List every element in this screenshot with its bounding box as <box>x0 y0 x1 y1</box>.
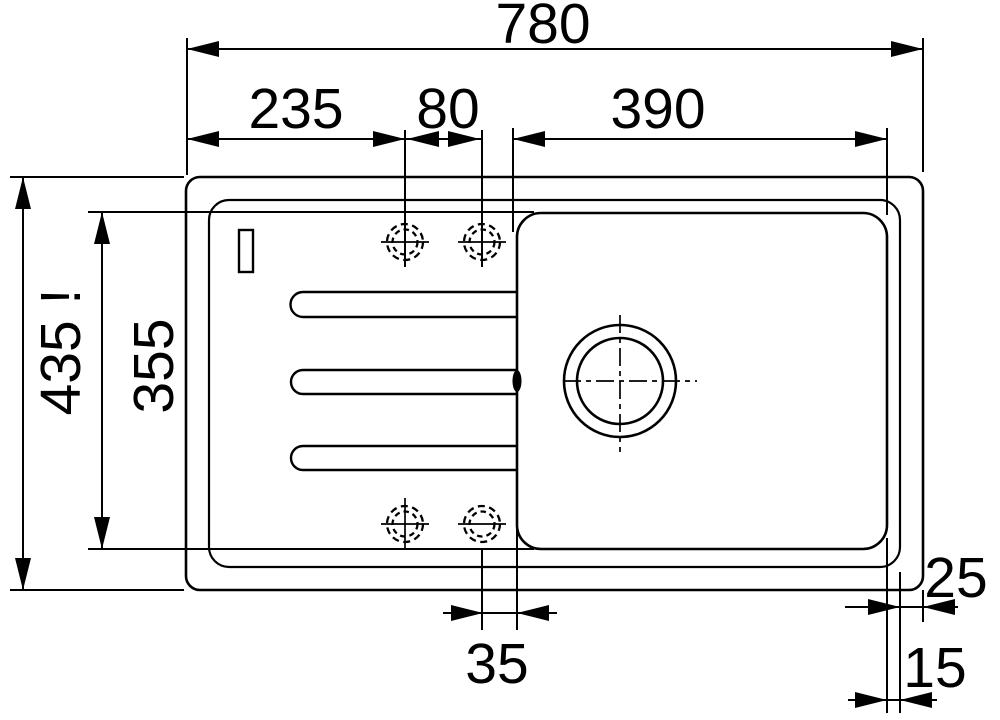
arrowhead <box>15 558 31 590</box>
dim-390-label: 390 <box>610 77 705 141</box>
dim-15-label: 15 <box>903 636 966 700</box>
tap-holes <box>381 224 506 549</box>
arrowhead <box>855 692 887 708</box>
sink-outer-edge <box>186 177 923 590</box>
arrowhead <box>187 41 219 57</box>
dim-355-label: 355 <box>122 318 186 413</box>
drawing-canvas: 780 235 80 390 435 ! 355 35 25 15 <box>0 0 1000 720</box>
dimension-labels: 780 235 80 390 435 ! 355 35 25 15 <box>29 0 988 700</box>
overflow-slot <box>239 230 253 272</box>
arrowhead <box>868 599 900 615</box>
dim-780-label: 780 <box>495 0 590 56</box>
drainboard-groove <box>291 446 517 470</box>
arrowhead <box>373 131 405 147</box>
sink-body <box>186 177 923 590</box>
arrowhead <box>94 212 110 244</box>
dim-235-label: 235 <box>248 77 343 141</box>
arrowhead <box>891 41 923 57</box>
drainboard-groove <box>291 292 518 317</box>
arrowhead <box>513 131 545 147</box>
arrowhead <box>187 131 219 147</box>
dim-25-label: 25 <box>924 546 987 610</box>
tap-hole <box>381 498 429 549</box>
drain <box>563 315 697 452</box>
arrowhead <box>15 177 31 209</box>
arrowhead <box>517 605 549 621</box>
arrowhead <box>855 131 887 147</box>
sink-dimension-drawing: 780 235 80 390 435 ! 355 35 25 15 <box>0 0 1000 720</box>
dim-80-label: 80 <box>416 77 479 141</box>
tap-hole <box>458 506 506 542</box>
arrowhead <box>451 605 483 621</box>
dim-435-label: 435 ! <box>29 289 93 416</box>
drainboard-groove <box>291 370 517 394</box>
groove-drain-mark <box>513 370 522 392</box>
arrowhead <box>94 517 110 549</box>
sink-inner-rim <box>209 200 900 567</box>
dim-35-label: 35 <box>465 632 528 696</box>
